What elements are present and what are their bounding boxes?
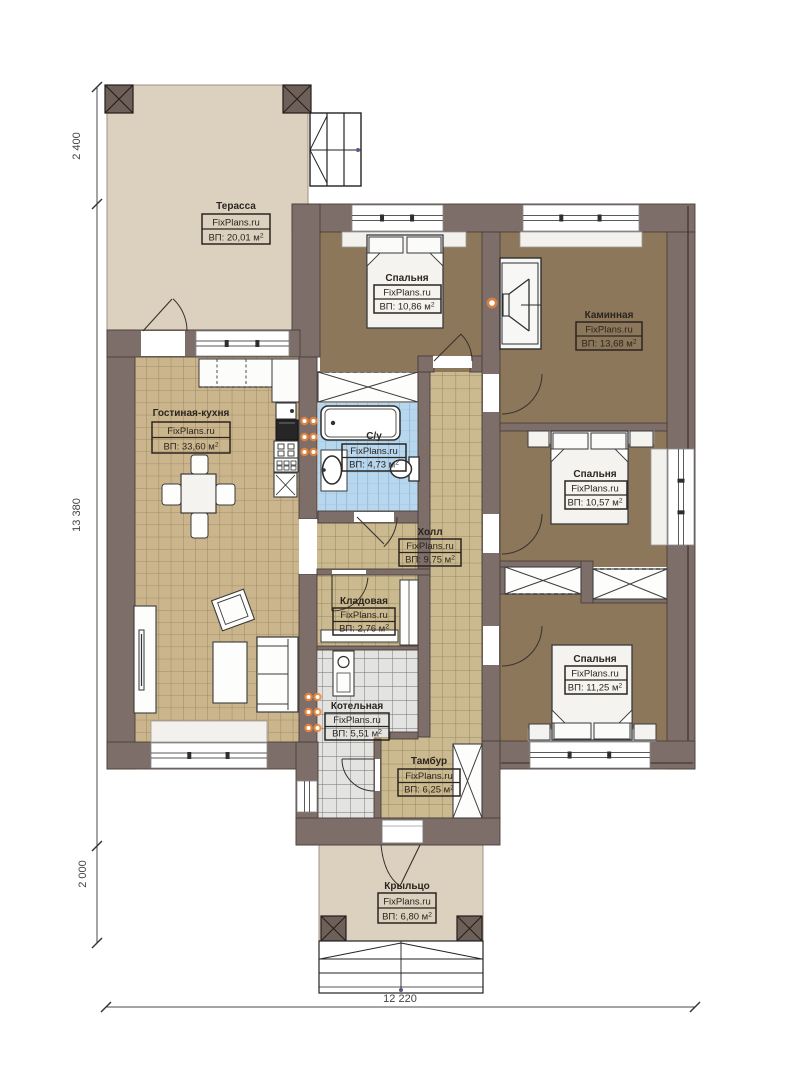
- svg-text:ВП: 10,57 м2: ВП: 10,57 м2: [567, 498, 622, 509]
- svg-text:FixPlans.ru: FixPlans.ru: [167, 426, 215, 437]
- svg-text:Каминная: Каминная: [585, 310, 634, 321]
- svg-text:Крыльцо: Крыльцо: [384, 881, 430, 892]
- svg-text:12 220: 12 220: [383, 993, 417, 1005]
- svg-text:ВП: 11,25 м2: ВП: 11,25 м2: [568, 683, 623, 694]
- svg-text:ВП: 20,01 м2: ВП: 20,01 м2: [208, 233, 263, 244]
- svg-text:FixPlans.ru: FixPlans.ru: [340, 610, 388, 621]
- svg-text:Котельная: Котельная: [331, 701, 384, 712]
- svg-text:ВП: 13,68 м2: ВП: 13,68 м2: [581, 339, 636, 350]
- svg-text:FixPlans.ru: FixPlans.ru: [405, 771, 453, 782]
- svg-text:2 000: 2 000: [77, 860, 89, 888]
- svg-text:FixPlans.ru: FixPlans.ru: [212, 218, 260, 229]
- svg-text:13 380: 13 380: [71, 498, 83, 532]
- svg-text:ВП: 6,80 м2: ВП: 6,80 м2: [382, 912, 432, 923]
- svg-text:Терасса: Терасса: [216, 201, 256, 212]
- svg-text:ВП: 2,76 м2: ВП: 2,76 м2: [339, 624, 389, 635]
- svg-text:ВП: 33,60 м2: ВП: 33,60 м2: [163, 442, 218, 453]
- svg-text:FixPlans.ru: FixPlans.ru: [585, 325, 633, 336]
- svg-text:2 400: 2 400: [71, 132, 83, 160]
- svg-text:FixPlans.ru: FixPlans.ru: [333, 715, 381, 726]
- svg-text:Спальня: Спальня: [573, 469, 616, 480]
- svg-text:ВП: 4,73 м2: ВП: 4,73 м2: [349, 460, 399, 471]
- svg-text:FixPlans.ru: FixPlans.ru: [571, 484, 619, 495]
- svg-text:FixPlans.ru: FixPlans.ru: [383, 897, 431, 908]
- svg-text:ВП: 9,75 м2: ВП: 9,75 м2: [405, 555, 455, 566]
- svg-text:Тамбур: Тамбур: [411, 755, 447, 767]
- svg-text:FixPlans.ru: FixPlans.ru: [383, 288, 431, 299]
- svg-text:ВП: 6,25 м2: ВП: 6,25 м2: [404, 785, 454, 796]
- svg-text:FixPlans.ru: FixPlans.ru: [571, 669, 619, 680]
- svg-text:Спальня: Спальня: [385, 273, 428, 284]
- svg-text:ВП: 10,86 м2: ВП: 10,86 м2: [379, 302, 434, 313]
- svg-text:Спальня: Спальня: [573, 654, 616, 665]
- svg-text:FixPlans.ru: FixPlans.ru: [406, 541, 454, 552]
- svg-text:Гостиная-кухня: Гостиная-кухня: [153, 408, 230, 419]
- svg-text:С/у: С/у: [366, 431, 382, 442]
- svg-text:Кладовая: Кладовая: [340, 596, 388, 607]
- svg-text:ВП: 5,51 м2: ВП: 5,51 м2: [332, 729, 382, 740]
- svg-text:FixPlans.ru: FixPlans.ru: [350, 446, 398, 457]
- svg-text:Холл: Холл: [417, 527, 442, 538]
